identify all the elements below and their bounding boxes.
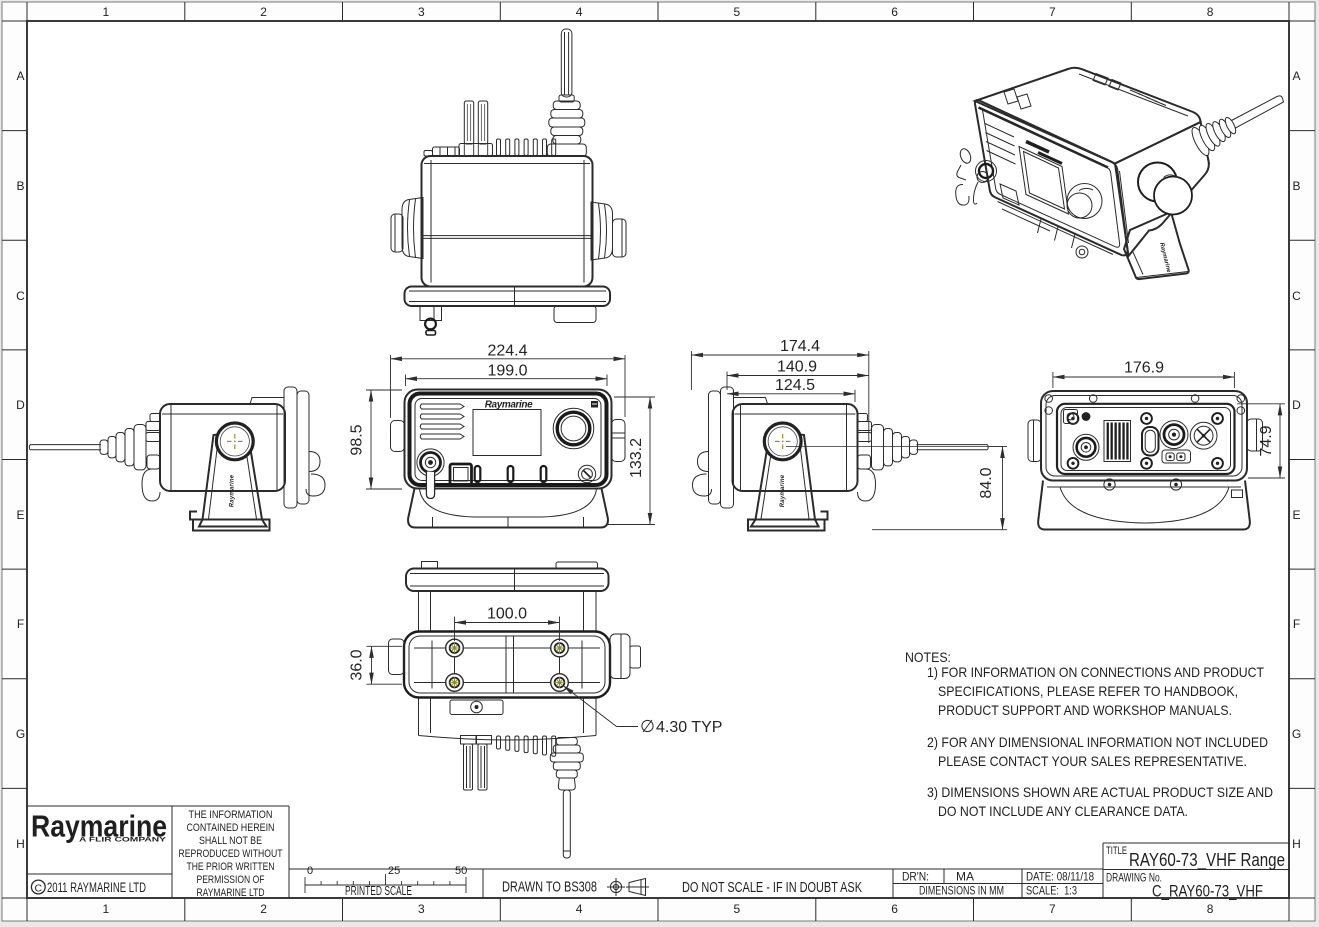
svg-text:Raymarine: Raymarine (230, 474, 236, 507)
svg-text:8: 8 (1207, 902, 1214, 916)
svg-text:7: 7 (1049, 5, 1056, 19)
svg-text:1) FOR INFORMATION ON CONNECTI: 1) FOR INFORMATION ON CONNECTIONS AND PR… (927, 664, 1264, 680)
svg-text:A: A (1292, 69, 1300, 83)
svg-text:8: 8 (1207, 5, 1214, 19)
svg-text:E: E (1292, 508, 1300, 522)
svg-text:DATE: 08/11/18: DATE: 08/11/18 (1026, 870, 1094, 884)
svg-text:6: 6 (891, 902, 898, 916)
svg-text:5: 5 (734, 5, 741, 19)
svg-text:PLEASE CONTACT YOUR SALES REPR: PLEASE CONTACT YOUR SALES REPRESENTATIVE… (938, 753, 1247, 769)
svg-text:Raymarine: Raymarine (780, 474, 786, 507)
svg-text:PRINTED SCALE: PRINTED SCALE (345, 884, 412, 898)
svg-text:140.9: 140.9 (777, 359, 817, 376)
svg-text:74.9: 74.9 (1258, 425, 1275, 456)
svg-text:A FLIR COMPANY: A FLIR COMPANY (79, 837, 167, 844)
svg-text:PERMISSION OF: PERMISSION OF (197, 874, 265, 886)
svg-text:98.5: 98.5 (349, 424, 366, 455)
svg-text:6: 6 (891, 5, 898, 19)
svg-text:B: B (1292, 179, 1300, 193)
svg-text:25: 25 (388, 865, 400, 877)
svg-text:MA: MA (956, 870, 974, 884)
svg-text:C_RAY60-73_VHF: C_RAY60-73_VHF (1152, 882, 1263, 901)
svg-text:D: D (16, 398, 25, 412)
svg-text:PRODUCT SUPPORT AND WORKSHOP M: PRODUCT SUPPORT AND WORKSHOP MANUALS. (938, 702, 1232, 718)
svg-text:2: 2 (260, 5, 267, 19)
svg-text:SPECIFICATIONS, PLEASE REFER T: SPECIFICATIONS, PLEASE REFER TO HANDBOOK… (938, 683, 1238, 699)
svg-text:H: H (1292, 837, 1301, 851)
svg-text:36.0: 36.0 (349, 649, 366, 680)
svg-text:2: 2 (260, 902, 267, 916)
svg-text:SHALL NOT BE: SHALL NOT BE (199, 835, 262, 847)
svg-text:4: 4 (576, 902, 583, 916)
svg-text:4: 4 (576, 5, 583, 19)
svg-text:DO NOT SCALE - IF IN DOUBT ASK: DO NOT SCALE - IF IN DOUBT ASK (682, 880, 862, 896)
svg-text:2) FOR ANY DIMENSIONAL INFORMA: 2) FOR ANY DIMENSIONAL INFORMATION NOT I… (927, 734, 1268, 750)
svg-text:B: B (16, 179, 24, 193)
svg-text:1: 1 (103, 5, 110, 19)
svg-text:4.30 TYP: 4.30 TYP (656, 719, 722, 736)
svg-text:0: 0 (307, 865, 313, 877)
svg-text:THE INFORMATION: THE INFORMATION (189, 809, 273, 821)
svg-text:C: C (1292, 289, 1301, 303)
svg-text:3: 3 (418, 5, 425, 19)
svg-text:224.4: 224.4 (487, 343, 527, 360)
svg-text:124.5: 124.5 (775, 377, 815, 394)
svg-text:1: 1 (103, 902, 110, 916)
svg-text:133.2: 133.2 (628, 438, 645, 478)
svg-text:176.9: 176.9 (1124, 360, 1164, 377)
svg-text:NOTES:: NOTES: (905, 649, 951, 665)
svg-text:DRAWN TO BS308: DRAWN TO BS308 (502, 880, 597, 896)
svg-text:100.0: 100.0 (487, 606, 527, 623)
svg-text:50: 50 (455, 865, 467, 877)
svg-text:C: C (16, 289, 25, 303)
svg-text:DO NOT INCLUDE ANY CLEARANCE D: DO NOT INCLUDE ANY CLEARANCE DATA. (938, 803, 1188, 819)
svg-text:C: C (35, 883, 43, 895)
svg-text:5: 5 (734, 902, 741, 916)
svg-text:3: 3 (418, 902, 425, 916)
svg-text:Raymarine: Raymarine (485, 400, 533, 411)
svg-text:G: G (1292, 727, 1301, 741)
svg-text:DR'N:: DR'N: (902, 870, 929, 884)
svg-text:3) DIMENSIONS SHOWN ARE ACTUAL: 3) DIMENSIONS SHOWN ARE ACTUAL PRODUCT S… (927, 784, 1273, 800)
svg-text:G: G (16, 727, 25, 741)
svg-text:199.0: 199.0 (487, 362, 527, 379)
svg-text:RAYMARINE LTD: RAYMARINE LTD (197, 887, 265, 899)
svg-text:174.4: 174.4 (780, 338, 820, 355)
svg-text:84.0: 84.0 (978, 467, 995, 498)
svg-text:SCALE: 1:3: SCALE: 1:3 (1026, 884, 1077, 898)
svg-text:REPRODUCED WITHOUT: REPRODUCED WITHOUT (179, 848, 283, 860)
svg-text:RAY60-73_VHF Range: RAY60-73_VHF Range (1129, 850, 1285, 871)
svg-text:DIMENSIONS IN MM: DIMENSIONS IN MM (919, 884, 1004, 898)
svg-text:7: 7 (1049, 902, 1056, 916)
svg-text:E: E (16, 508, 24, 522)
svg-text:CONTAINED HEREIN: CONTAINED HEREIN (187, 822, 275, 834)
svg-text:H: H (16, 837, 25, 851)
svg-text:F: F (1293, 617, 1300, 631)
svg-text:F: F (17, 617, 24, 631)
svg-text:THE PRIOR WRITTEN: THE PRIOR WRITTEN (187, 861, 275, 873)
svg-text:D: D (1292, 398, 1301, 412)
svg-text:TITLE: TITLE (1106, 845, 1127, 857)
svg-text:A: A (16, 69, 24, 83)
svg-text:2011 RAYMARINE LTD: 2011 RAYMARINE LTD (47, 880, 146, 895)
